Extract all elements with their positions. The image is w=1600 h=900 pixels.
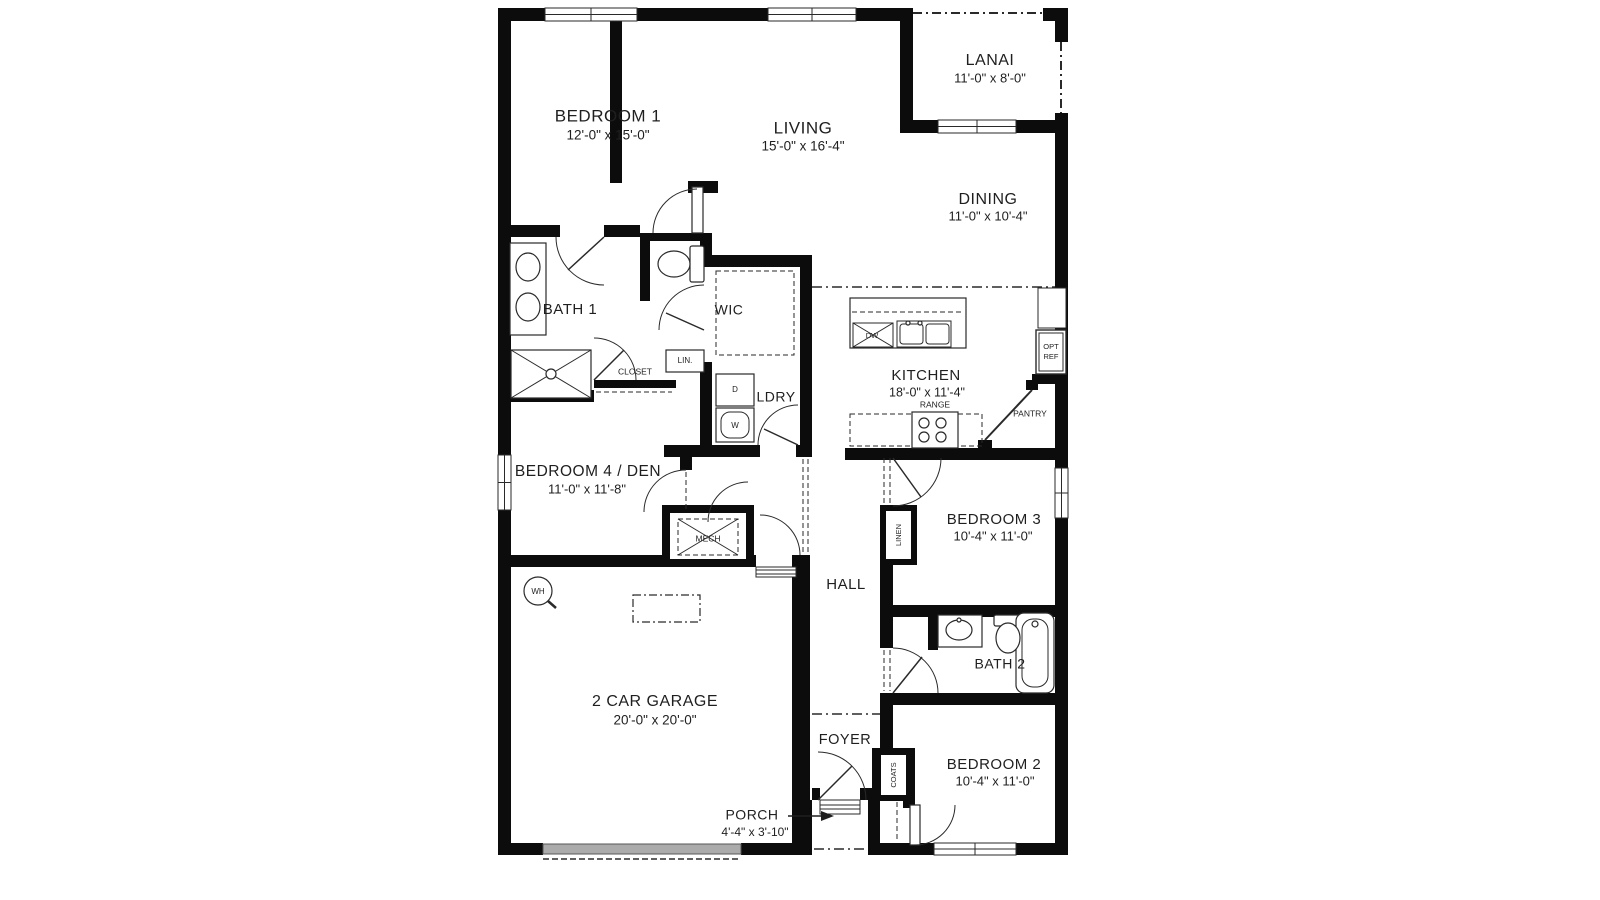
room-label-wic: WIC bbox=[715, 302, 744, 318]
wall-27 bbox=[700, 362, 712, 457]
linen-closet-label: LINEN bbox=[894, 524, 903, 546]
door-leaf-bedroom3 bbox=[893, 458, 921, 497]
room-label-bedroom-3: BEDROOM 3 bbox=[947, 511, 1042, 528]
door-leaf-laundry bbox=[764, 429, 798, 445]
bath2-faucet bbox=[957, 618, 961, 622]
wall-34 bbox=[792, 555, 810, 843]
wall-52 bbox=[1026, 380, 1038, 390]
room-dims-living: 15'-0" x 16'-4" bbox=[761, 139, 844, 154]
wall-19 bbox=[604, 225, 640, 237]
wall-18 bbox=[498, 225, 560, 237]
room-dims-lanai: 11'-0" x 8'-0" bbox=[954, 70, 1026, 85]
wall-36 bbox=[880, 448, 893, 458]
door-arc-bedroom3 bbox=[893, 458, 941, 506]
bath1-sink-top bbox=[516, 253, 540, 281]
coats-closet-label: COATS bbox=[889, 762, 898, 787]
sink-basin-left bbox=[900, 324, 923, 344]
wall-10 bbox=[900, 120, 938, 133]
wall-5 bbox=[900, 8, 913, 133]
burner-2 bbox=[936, 418, 946, 428]
room-label-bath-2: BATH 2 bbox=[975, 656, 1026, 672]
room-label-lanai: LANAI bbox=[966, 52, 1015, 69]
wall-30 bbox=[680, 457, 692, 470]
door-leaf-bath2 bbox=[893, 657, 922, 693]
wall-7 bbox=[1055, 8, 1068, 42]
wall-51 bbox=[978, 440, 992, 450]
wall-12 bbox=[498, 843, 543, 855]
door-leaf-front bbox=[818, 766, 852, 800]
opt-ref-label-2: REF bbox=[1044, 352, 1059, 361]
room-label-hall: HALL bbox=[826, 576, 866, 593]
wall-35 bbox=[845, 448, 1068, 460]
door-arc-laundry bbox=[758, 405, 798, 445]
wh-spigot bbox=[548, 601, 556, 608]
wall-23 bbox=[704, 255, 812, 267]
wall-50 bbox=[868, 800, 880, 848]
fridge-counter bbox=[1038, 288, 1066, 328]
water-heater-label: WH bbox=[531, 587, 545, 596]
wall-16 bbox=[610, 8, 622, 183]
toilet1-tank bbox=[690, 246, 704, 282]
room-dims-bedroom-4-den: 11'-0" x 11'-8" bbox=[548, 481, 626, 496]
wall-15 bbox=[1016, 843, 1068, 855]
wall-28 bbox=[664, 445, 760, 457]
range bbox=[912, 412, 958, 448]
room-label-bedroom-1: BEDROOM 1 bbox=[555, 106, 662, 125]
room-dims-bedroom-2: 10'-4" x 11'-0" bbox=[956, 773, 1035, 788]
room-dims-bedroom-3: 10'-4" x 11'-0" bbox=[954, 528, 1033, 543]
door-arc-bedroom1 bbox=[653, 189, 697, 233]
opt-ref-label-1: OPT bbox=[1043, 342, 1059, 351]
floor-plan-drawing: BEDROOM 112'-0" x 15'-0"LIVING15'-0" x 1… bbox=[0, 0, 1600, 900]
room-label-bedroom-2: BEDROOM 2 bbox=[947, 756, 1042, 773]
washer-label: W bbox=[731, 421, 739, 430]
room-label-garage: 2 CAR GARAGE bbox=[592, 693, 718, 710]
closet-label: CLOSET bbox=[618, 366, 652, 376]
room-label-porch: PORCH bbox=[725, 807, 778, 823]
dishwasher-label: DW bbox=[866, 331, 879, 340]
wall-29 bbox=[796, 445, 812, 457]
wall-49 bbox=[800, 800, 812, 848]
garage-door bbox=[543, 844, 741, 854]
pantry-label: PANTRY bbox=[1013, 408, 1047, 418]
wall-21 bbox=[640, 233, 710, 241]
front-door-threshold bbox=[820, 800, 860, 814]
range-label: RANGE bbox=[920, 399, 951, 409]
room-label-kitchen: KITCHEN bbox=[891, 367, 960, 384]
room-label-laundry: LDRY bbox=[756, 389, 795, 405]
wall-40 bbox=[893, 693, 1068, 705]
room-dims-bedroom-1: 12'-0" x 15'-0" bbox=[566, 128, 649, 143]
wall-41 bbox=[928, 613, 938, 650]
wall-38 bbox=[880, 693, 893, 750]
kitchen-counter-left bbox=[850, 414, 912, 446]
burner-3 bbox=[919, 432, 929, 442]
room-label-bath-1: BATH 1 bbox=[543, 301, 597, 318]
toilet2-bowl bbox=[996, 623, 1020, 653]
room-label-foyer: FOYER bbox=[819, 732, 871, 748]
dryer-label: D bbox=[732, 385, 738, 394]
toilet1-bowl bbox=[658, 251, 690, 277]
wall-11 bbox=[1016, 120, 1068, 133]
room-label-dining: DINING bbox=[959, 191, 1018, 208]
burner-4 bbox=[936, 432, 946, 442]
garage-door-threshold bbox=[756, 567, 796, 577]
burner-1 bbox=[919, 418, 929, 428]
door-arc-garage bbox=[760, 515, 800, 555]
door-leaf-wic bbox=[666, 313, 704, 330]
wall-24 bbox=[800, 255, 812, 457]
door-leaf-bedroom2 bbox=[910, 805, 920, 845]
tub-faucet bbox=[1032, 621, 1038, 627]
island-faucet-1 bbox=[906, 321, 910, 325]
room-dims-porch: 4'-4" x 3'-10" bbox=[721, 825, 788, 839]
door-arc-bedroom2 bbox=[915, 805, 955, 845]
room-dims-kitchen: 18'-0" x 11'-4" bbox=[889, 385, 965, 399]
floor-plan-page: BEDROOM 112'-0" x 15'-0"LIVING15'-0" x 1… bbox=[0, 0, 1600, 900]
island-faucet-2 bbox=[918, 321, 922, 325]
wall-25 bbox=[594, 380, 676, 388]
wall-3 bbox=[637, 8, 768, 21]
mech-label: MECH bbox=[695, 533, 720, 543]
wall-20 bbox=[640, 233, 650, 301]
room-dims-garage: 20'-0" x 20'-0" bbox=[613, 713, 696, 728]
sink-basin-right bbox=[926, 324, 949, 344]
door-arc-bath2 bbox=[893, 648, 938, 693]
linen-cabinet-label: LIN. bbox=[678, 356, 693, 365]
room-label-bedroom-4-den: BEDROOM 4 / DEN bbox=[515, 463, 661, 480]
attic-access bbox=[633, 595, 700, 622]
door-leaf-bedroom1 bbox=[692, 187, 703, 233]
door-leaf-bath1 bbox=[568, 237, 604, 270]
bath2-sink bbox=[946, 620, 972, 640]
room-dims-dining: 11'-0" x 10'-4" bbox=[949, 208, 1028, 223]
wall-9 bbox=[1055, 518, 1068, 855]
shower-drain bbox=[546, 369, 556, 379]
bath1-sink-bottom bbox=[516, 293, 540, 321]
wall-2 bbox=[498, 8, 545, 21]
room-label-living: LIVING bbox=[774, 118, 833, 137]
door-arc-wic bbox=[659, 285, 704, 330]
